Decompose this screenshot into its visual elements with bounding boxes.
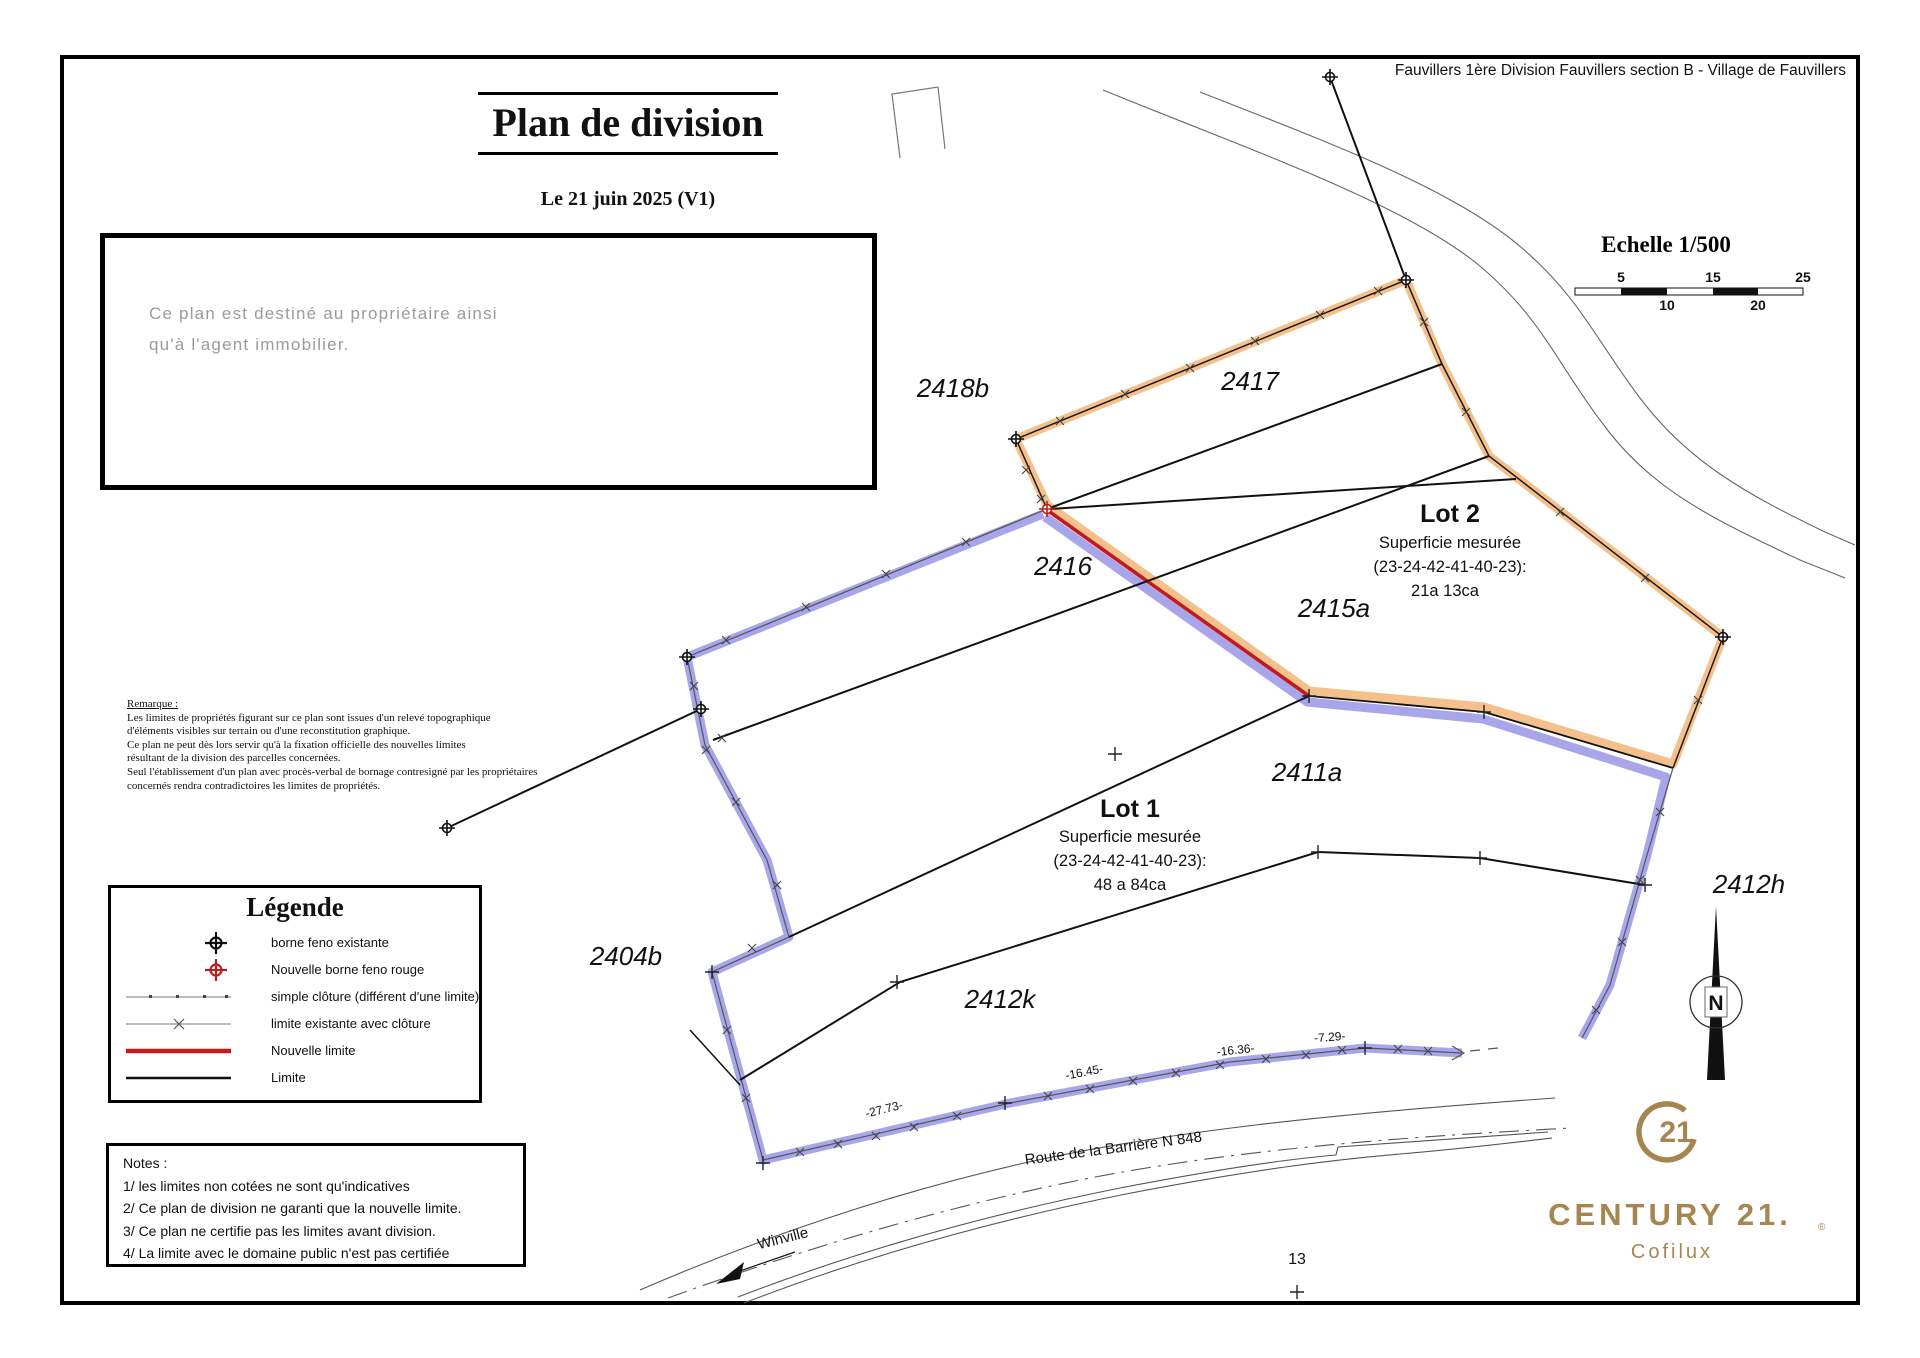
measure-16-45: -16.45- [1064, 1062, 1104, 1083]
info-box: Ce plan est destiné au propriétaire ains… [100, 233, 877, 490]
borne-icon [439, 820, 455, 836]
scale-tick-25: 25 [1795, 269, 1811, 285]
century21-wordmark: CENTURY 21. [1548, 1197, 1792, 1232]
note-line: 1/ les limites non cotées ne sont qu'ind… [123, 1175, 523, 1198]
scale-tick-15: 15 [1705, 269, 1721, 285]
lot2-points: (23-24-42-41-40-23): [1373, 558, 1526, 576]
legend-item-label: simple clôture (différent d'une limite) [271, 989, 479, 1004]
legend-box: Légende borne feno existante Nouvelle bo… [108, 885, 482, 1103]
limit-lines [447, 77, 1645, 1085]
notes-title: Notes : [123, 1152, 523, 1175]
legend-item: simple clôture (différent d'une limite) [111, 984, 479, 1010]
parcel-label-2417: 2417 [1220, 366, 1280, 396]
simple-fence-line-icon [121, 984, 271, 1010]
legend-title: Légende [111, 892, 479, 923]
scale-label: Echelle 1/500 [1601, 232, 1731, 257]
lot2-subtitle: Superficie mesurée [1379, 534, 1521, 552]
legend-item: Nouvelle borne feno rouge [111, 957, 479, 983]
remark-line: d'éléments visibles sur terrain ou d'une… [127, 725, 577, 739]
tick-mark [1473, 851, 1487, 865]
remark-block: Remarque : Les limites de propriétés fig… [127, 698, 577, 793]
lot1-area: 48 a 84ca [1094, 876, 1167, 894]
remark-line: résultant de la division des parcelles c… [127, 752, 577, 766]
info-line-2: qu'à l'agent immobilier. [149, 329, 872, 360]
parcel-label-2415a: 2415a [1297, 593, 1370, 623]
remark-line: Ce plan ne peut dès lors servir qu'à la … [127, 739, 577, 753]
winville-arrow-line [737, 1252, 795, 1272]
parcel-label-2416: 2416 [1033, 551, 1092, 581]
scale-bar-seg1 [1621, 288, 1667, 295]
remark-title: Remarque : [127, 698, 577, 712]
new-limit-line-icon [121, 1038, 271, 1064]
plan-date: Le 21 juin 2025 (V1) [468, 188, 788, 211]
legend-item-label: borne feno existante [271, 935, 389, 950]
scale-tick-10: 10 [1659, 297, 1675, 313]
legend-item: limite existante avec clôture [111, 1011, 479, 1037]
road-lines [640, 1098, 1572, 1303]
century21-agency: Cofilux [1631, 1241, 1713, 1263]
lot2-name: Lot 2 [1420, 500, 1480, 528]
tick-mark [1290, 1285, 1304, 1299]
road-direction-label: Winville [756, 1224, 810, 1253]
limit-line-icon [121, 1065, 271, 1091]
tick-mark [1311, 845, 1325, 859]
tick-mark [439, 820, 455, 836]
measure-27-73: -27.73- [864, 1098, 904, 1121]
legend-item: borne feno existante [111, 930, 479, 956]
scale-bar-group: Echelle 1/500 5 15 25 10 20 [1575, 232, 1811, 313]
road-name-label: Route de la Barrière N 848 [1024, 1128, 1203, 1168]
new-borne-icon [121, 957, 271, 983]
lot2-text-block: Lot 2 Superficie mesurée (23-24-42-41-40… [1373, 500, 1526, 600]
remark-line: Les limites de propriétés figurant sur c… [127, 712, 577, 726]
legend-item-label: Limite [271, 1070, 306, 1085]
lot1-subtitle: Superficie mesurée [1059, 828, 1201, 846]
tick-mark [1108, 747, 1122, 761]
lot1-points: (23-24-42-41-40-23): [1053, 852, 1206, 870]
note-line: 4/ La limite avec le domaine public n'es… [123, 1242, 523, 1265]
note-line: 2/ Ce plan de division ne garanti que la… [123, 1197, 523, 1220]
century21-logo: 21 CENTURY 21. ® Cofilux [1548, 1104, 1826, 1263]
north-compass: N [1690, 906, 1742, 1080]
parcel-label-2412k: 2412k [964, 984, 1038, 1014]
lot2-area: 21a 13ca [1411, 582, 1480, 600]
lot1-name: Lot 1 [1100, 795, 1160, 823]
legend-item-label: limite existante avec clôture [271, 1016, 431, 1031]
point-13-label: 13 [1288, 1251, 1306, 1268]
legend-item: Nouvelle limite [111, 1038, 479, 1064]
existing-borne-icon [121, 930, 271, 956]
scale-bar [1575, 288, 1803, 295]
century21-mark-21: 21 [1659, 1116, 1692, 1149]
compass-n-label: N [1708, 992, 1723, 1015]
survey-plus-ticks [705, 689, 1652, 1299]
legend-item: Limite [111, 1065, 479, 1091]
existing-limit-fence-line-icon [121, 1011, 271, 1037]
parcel-label-2418b: 2418b [916, 373, 989, 403]
remark-line: concernés rendra contradictoires les lim… [127, 780, 577, 794]
note-line: 3/ Ce plan ne certifie pas les limites a… [123, 1220, 523, 1243]
parcel-label-2412h: 2412h [1712, 869, 1785, 899]
scale-tick-5: 5 [1617, 269, 1625, 285]
registered-mark: ® [1818, 1222, 1826, 1233]
scale-tick-20: 20 [1750, 297, 1766, 313]
info-line-1: Ce plan est destiné au propriétaire ains… [149, 298, 872, 329]
remark-line: Seul l'établissement d'un plan avec proc… [127, 766, 577, 780]
winville-arrow-icon [716, 1262, 744, 1284]
notes-box: Notes : 1/ les limites non cotées ne son… [106, 1143, 526, 1267]
title-block: Plan de division [468, 92, 788, 155]
location-header: Fauvillers 1ère Division Fauvillers sect… [1100, 62, 1846, 80]
lot1-text-block: Lot 1 Superficie mesurée (23-24-42-41-40… [1053, 795, 1206, 894]
legend-item-label: Nouvelle limite [271, 1043, 356, 1058]
parcel-label-2411a: 2411a [1271, 757, 1342, 787]
measure-7-29: -7.29- [1314, 1029, 1346, 1045]
plan-page: 2418b 2417 2416 2415a 2411a 2404b 2412k … [0, 0, 1920, 1358]
parcel-label-2404b: 2404b [589, 941, 662, 971]
page-title: Plan de division [478, 92, 777, 155]
scale-bar-seg2 [1713, 288, 1758, 295]
building-outline [892, 87, 945, 158]
legend-item-label: Nouvelle borne feno rouge [271, 962, 424, 977]
lot2-perimeter-band [1016, 280, 1723, 764]
